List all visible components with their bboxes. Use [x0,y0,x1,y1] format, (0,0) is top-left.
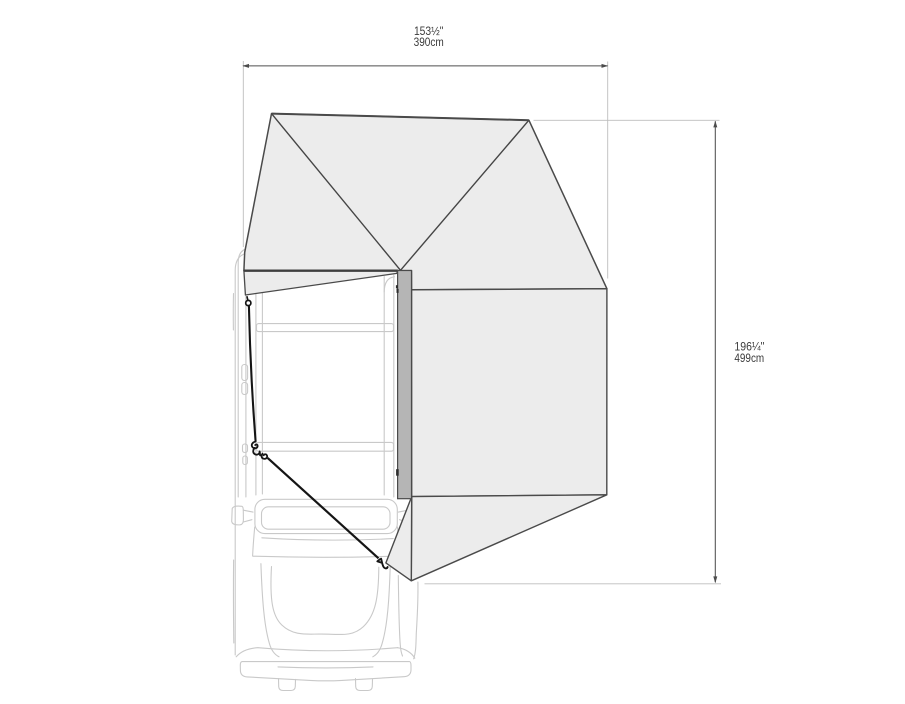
svg-text:499cm: 499cm [734,353,764,365]
svg-text:196¼": 196¼" [734,341,764,353]
svg-text:390cm: 390cm [414,37,444,49]
